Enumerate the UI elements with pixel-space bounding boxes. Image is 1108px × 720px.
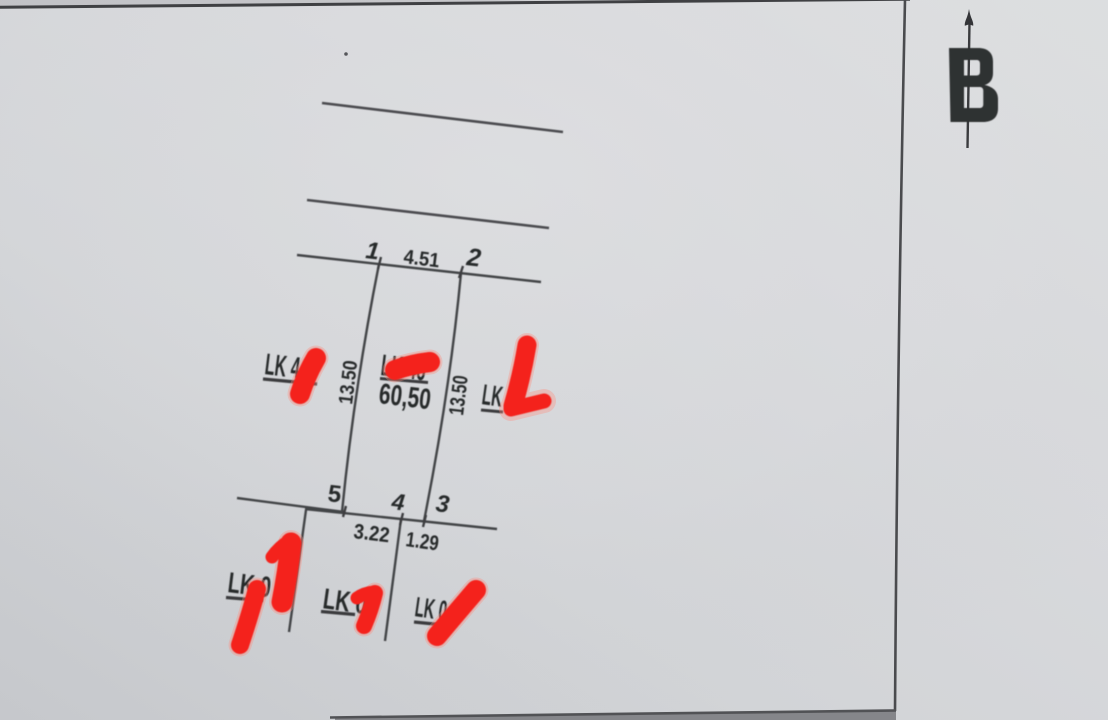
svg-text:1.29: 1.29 xyxy=(404,528,440,555)
svg-text:60,50: 60,50 xyxy=(377,378,433,416)
svg-text:4.51: 4.51 xyxy=(402,246,440,272)
svg-text:13.50: 13.50 xyxy=(445,374,473,417)
svg-text:3.22: 3.22 xyxy=(352,520,391,547)
